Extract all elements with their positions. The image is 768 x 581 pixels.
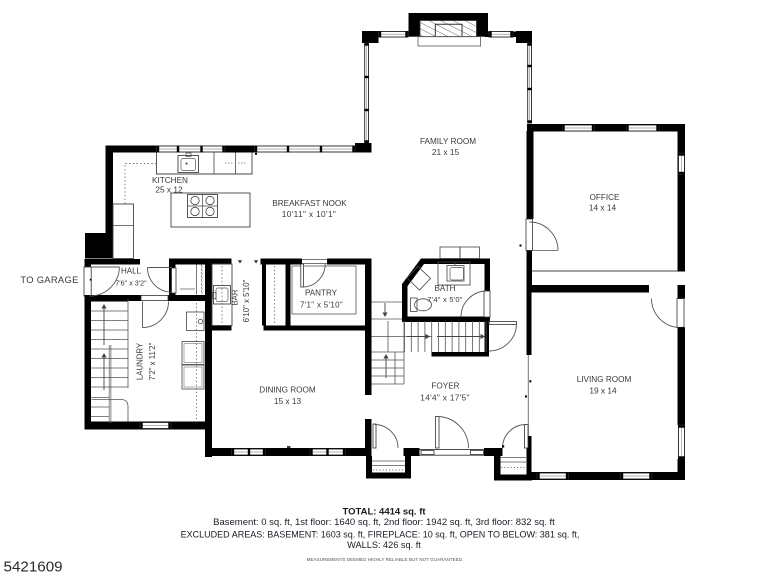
svg-text:BREAKFAST NOOK: BREAKFAST NOOK [272,199,347,208]
svg-text:15 x 13: 15 x 13 [274,396,302,406]
svg-text:EXCLUDED AREAS: BASEMENT: 1603: EXCLUDED AREAS: BASEMENT: 1603 sq. ft, F… [181,530,580,540]
svg-text:6'10" x 5'10": 6'10" x 5'10" [242,279,251,322]
svg-text:Basement: 0 sq. ft, 1st floor:: Basement: 0 sq. ft, 1st floor: 1640 sq. … [213,517,555,528]
svg-text:OFFICE: OFFICE [589,193,620,202]
svg-text:BATH: BATH [435,284,456,293]
svg-text:MEASUREMENTS DEEMED HIGHLY REL: MEASUREMENTS DEEMED HIGHLY RELIABLE BUT … [307,557,464,562]
svg-text:LIVING ROOM: LIVING ROOM [577,375,632,384]
svg-text:7'4" x 5'0": 7'4" x 5'0" [427,295,463,304]
svg-text:25 x 12: 25 x 12 [155,184,183,194]
svg-text:BAR: BAR [231,289,240,305]
svg-text:21 x 15: 21 x 15 [432,147,460,157]
svg-text:10'11" x 10'1": 10'11" x 10'1" [282,209,336,219]
svg-text:19 x 14: 19 x 14 [589,385,617,395]
svg-text:7'6" x 3'2": 7'6" x 3'2" [115,278,147,287]
svg-text:HALL: HALL [121,267,142,276]
svg-text:14 x 14: 14 x 14 [589,203,617,213]
svg-text:5421609: 5421609 [4,558,63,575]
svg-text:TO GARAGE: TO GARAGE [20,274,78,285]
svg-text:DINING ROOM: DINING ROOM [259,385,316,394]
svg-text:FAMILY ROOM: FAMILY ROOM [420,137,476,146]
svg-text:PANTRY: PANTRY [305,289,338,298]
svg-text:7'1" x 5'10": 7'1" x 5'10" [300,300,343,309]
svg-text:7'2" x 11'2": 7'2" x 11'2" [148,342,157,380]
svg-text:FOYER: FOYER [431,382,459,391]
svg-text:14'4" x 17'5": 14'4" x 17'5" [420,392,469,402]
svg-text:WALLS: 426 sq. ft: WALLS: 426 sq. ft [347,540,421,550]
svg-text:LAUNDRY: LAUNDRY [136,342,145,380]
